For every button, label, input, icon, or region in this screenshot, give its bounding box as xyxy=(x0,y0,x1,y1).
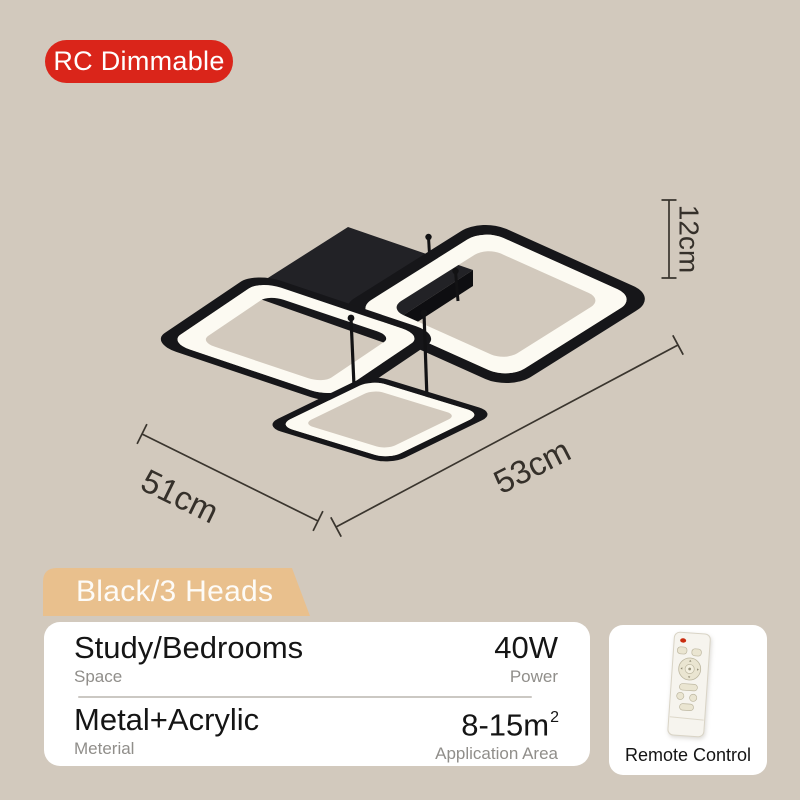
dimension-height: 12cm xyxy=(662,200,705,278)
remote-control-label: Remote Control xyxy=(609,745,767,766)
ceiling-lamp-illustration: 12cm 51cm 53cm xyxy=(0,0,800,565)
remote-button xyxy=(692,649,702,657)
spec-label-space: Space xyxy=(74,667,303,687)
variant-badge-label: Black/3 Heads xyxy=(76,568,273,616)
remote-button xyxy=(679,683,697,691)
spec-card: Study/Bedrooms Space 40W Power Metal+Acr… xyxy=(44,622,590,766)
remote-control-image xyxy=(651,630,727,742)
rod-joint xyxy=(452,268,458,274)
remote-button xyxy=(689,694,697,702)
remote-body-group xyxy=(668,632,711,737)
spec-cell-power: 40W Power xyxy=(494,630,558,687)
spec-value-power: 40W xyxy=(494,630,558,666)
spec-label-material: Meterial xyxy=(74,739,259,759)
spec-label-area: Application Area xyxy=(435,744,558,764)
remote-card: Remote Control xyxy=(609,625,767,775)
remote-button xyxy=(677,647,687,655)
power-value-text: 40W xyxy=(494,630,558,665)
spec-row-material-area: Metal+Acrylic Meterial 8-15m2 Applicatio… xyxy=(74,702,558,766)
spec-cell-material: Metal+Acrylic Meterial xyxy=(74,702,259,759)
area-value-text: 8-15m xyxy=(461,707,549,742)
spec-value-space: Study/Bedrooms xyxy=(74,630,303,666)
spec-label-power: Power xyxy=(494,667,558,687)
product-image: RC Dimmable xyxy=(0,0,800,800)
rod-joint xyxy=(421,310,428,317)
rod-joint xyxy=(348,315,355,322)
remote-button xyxy=(676,692,684,700)
spec-divider xyxy=(78,696,532,698)
spec-cell-space: Study/Bedrooms Space xyxy=(74,630,303,687)
spec-cell-area: 8-15m2 Application Area xyxy=(435,702,558,764)
area-value-superscript: 2 xyxy=(550,709,559,726)
dimension-width-right-label: 53cm xyxy=(488,431,577,501)
spec-row-space-power: Study/Bedrooms Space 40W Power xyxy=(74,630,558,694)
dimension-width-left: 51cm xyxy=(136,424,323,531)
remote-button xyxy=(679,703,693,710)
dimension-width-left-label: 51cm xyxy=(136,462,225,531)
spec-value-material: Metal+Acrylic xyxy=(74,702,259,738)
rod-joint xyxy=(425,234,431,240)
spec-value-area: 8-15m2 xyxy=(435,702,558,743)
variant-badge: Black/3 Heads xyxy=(43,568,310,616)
dimension-height-label: 12cm xyxy=(674,205,705,273)
